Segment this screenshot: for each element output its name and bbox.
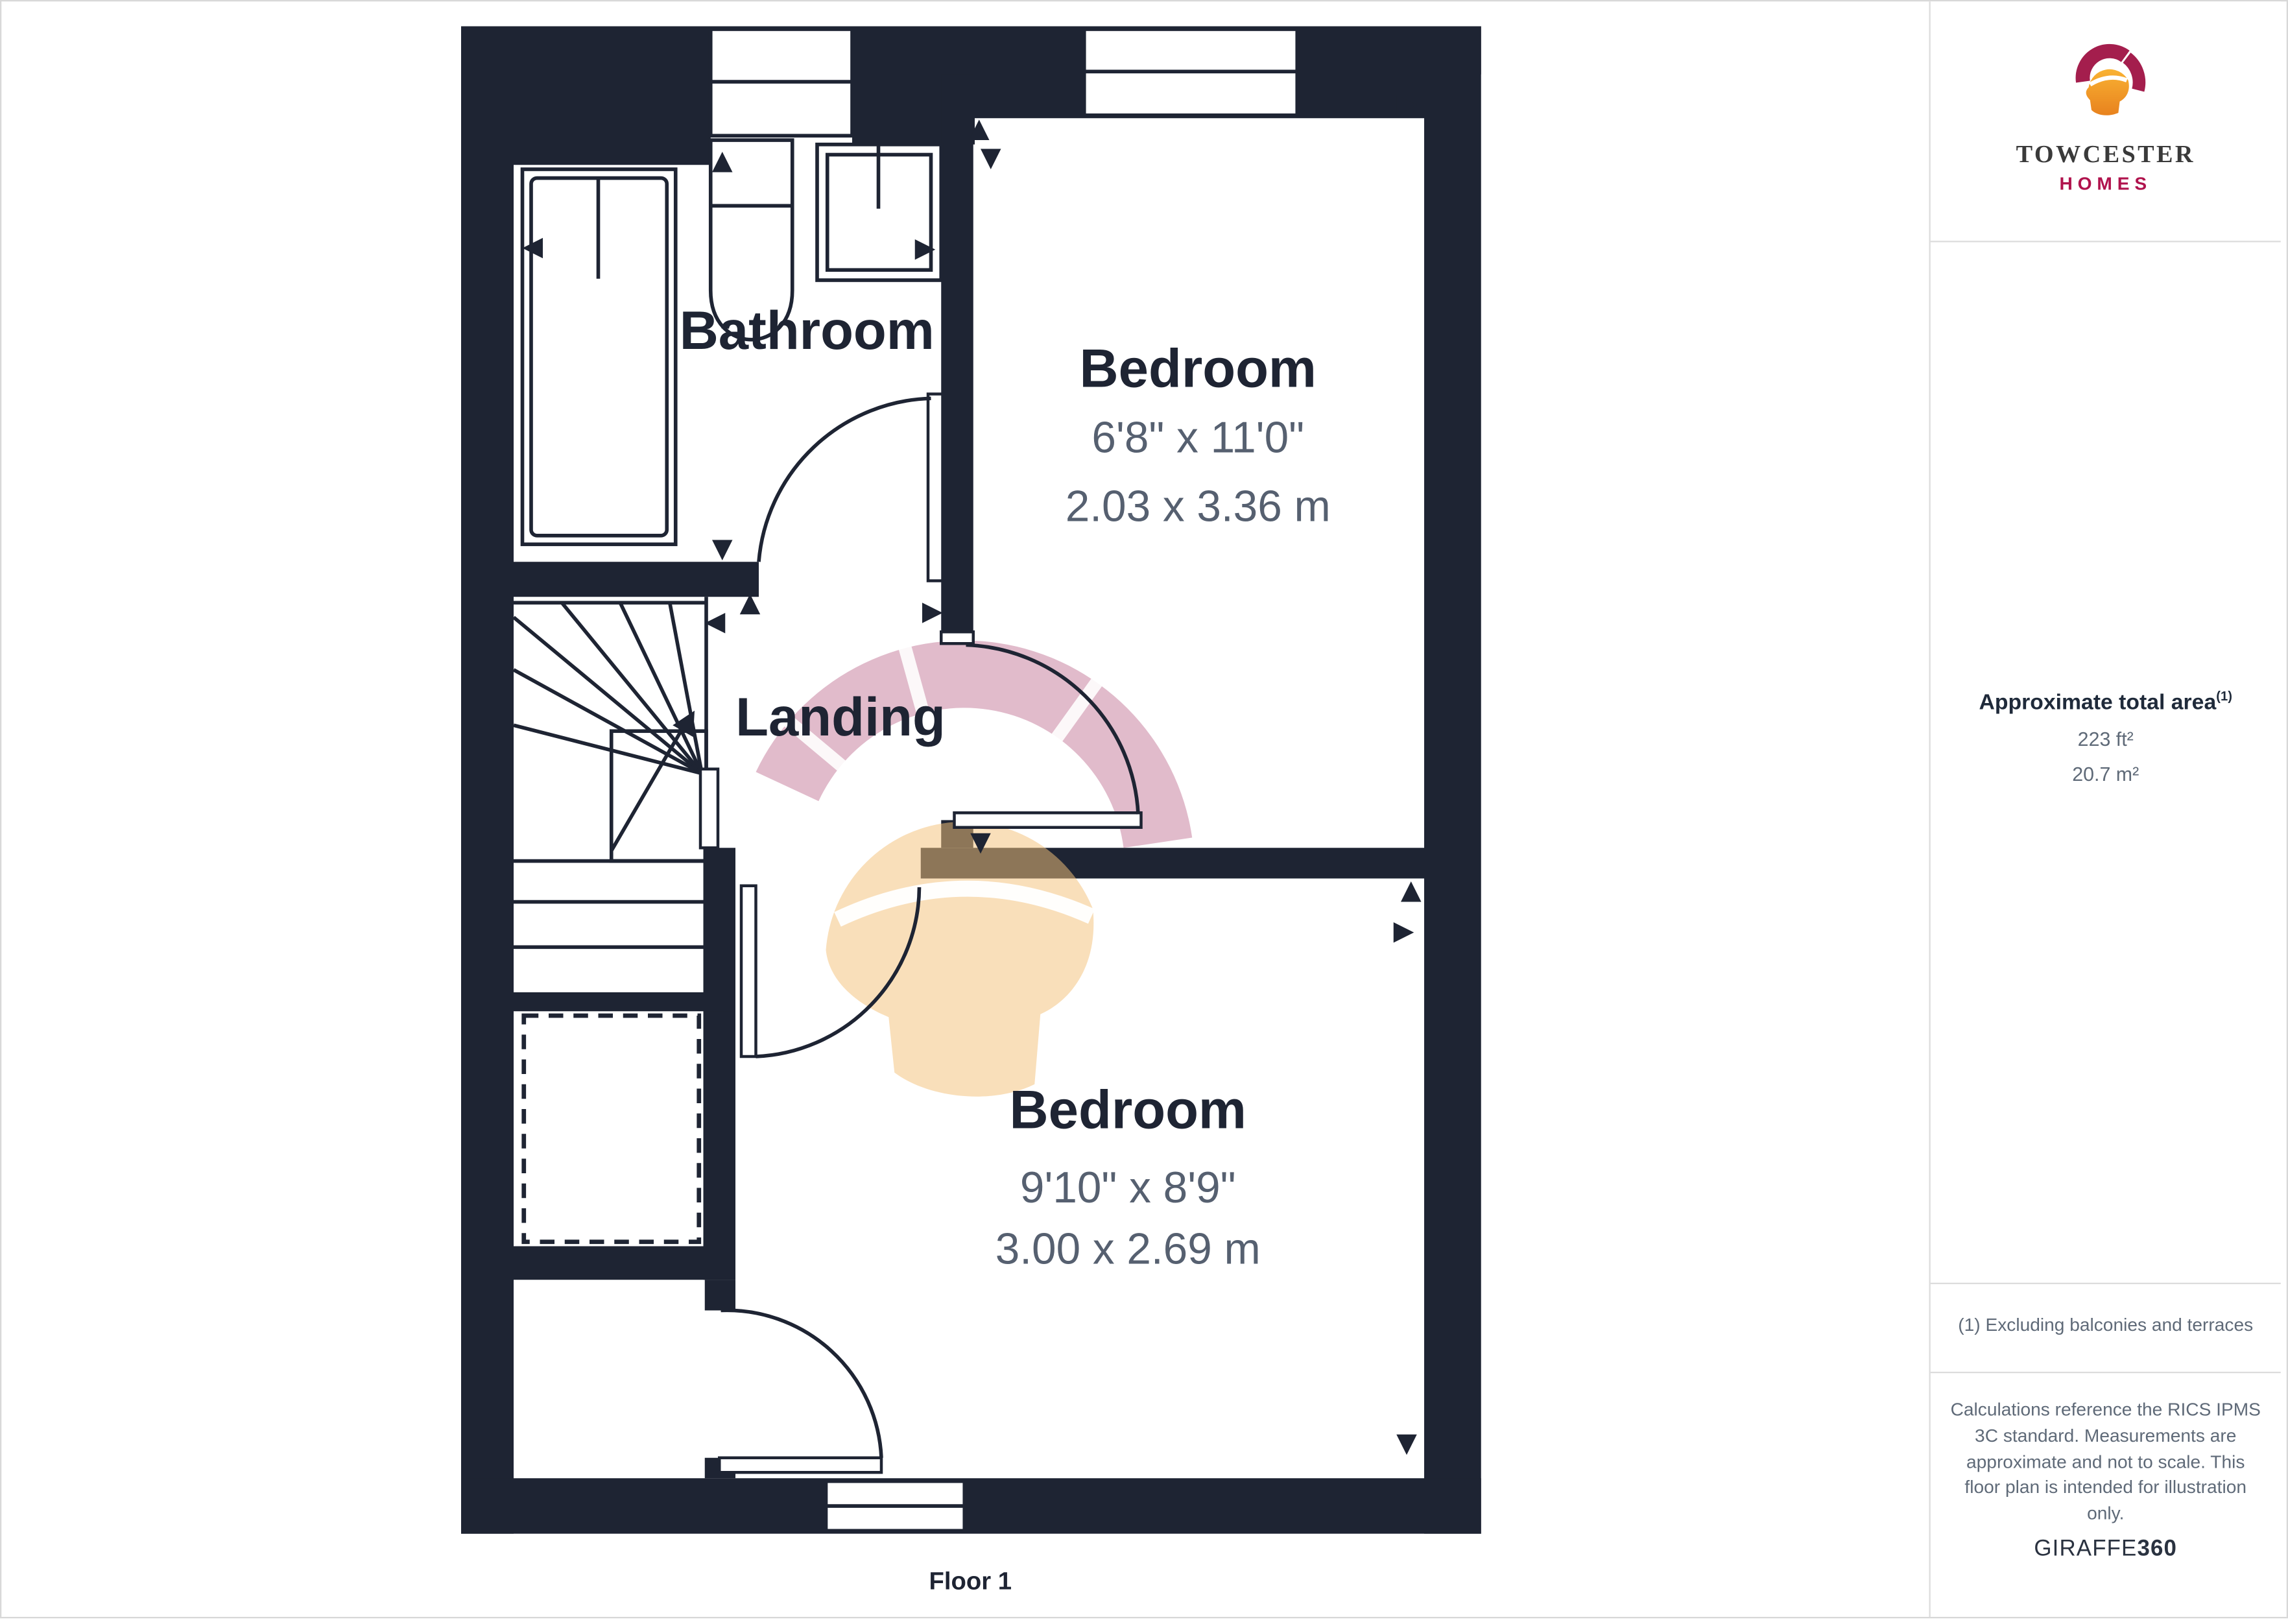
info-sidebar: TOWCESTER HOMES Approximate total area(1… (1929, 1, 2281, 1617)
brand-part2: 360 (2137, 1536, 2177, 1561)
bedroom-top-label: Bedroom (1080, 338, 1317, 398)
total-area-block: Approximate total area(1) 223 ft² 20.7 m… (1931, 689, 2281, 785)
stairs (514, 597, 706, 947)
towcester-homes-logo: TOWCESTER HOMES (1931, 36, 2281, 194)
floor-plan-drawing: Bathroom Bedroom 6'8" x 11'0" 2.03 x 3.3… (1, 1, 1929, 1617)
helmet-logo-icon (2060, 36, 2151, 127)
total-area-title: Approximate total area(1) (1931, 689, 2281, 715)
bathtub (523, 169, 676, 544)
sink (817, 145, 941, 280)
bedroom-bottom-metric: 3.00 x 2.69 m (995, 1225, 1261, 1274)
logo-subname-text: HOMES (1931, 174, 2281, 195)
bedroom-bottom-imperial: 9'10" x 8'9" (1020, 1164, 1236, 1212)
sidebar-divider-3 (1931, 1372, 2281, 1373)
brand-part1: GIRAFFE (2034, 1536, 2137, 1561)
window-bathroom (711, 29, 852, 136)
sidebar-divider-2 (1931, 1283, 2281, 1284)
window-bedroom-bottom (826, 1481, 965, 1531)
sidebar-divider-1 (1931, 241, 2281, 242)
landing-label: Landing (735, 687, 946, 747)
total-area-metric: 20.7 m² (1931, 763, 2281, 785)
bathroom-label: Bathroom (680, 300, 935, 361)
disclaimer-text: Calculations reference the RICS IPMS 3C … (1949, 1398, 2262, 1528)
floorplan-page: Bathroom Bedroom 6'8" x 11'0" 2.03 x 3.3… (0, 0, 2288, 1619)
door-store-room (719, 1310, 881, 1472)
footnote-text: (1) Excluding balconies and terraces (1931, 1315, 2281, 1335)
storage-dashed-box (524, 1016, 699, 1242)
bedroom-bottom-label: Bedroom (1010, 1079, 1246, 1140)
door-bathroom (759, 394, 943, 581)
floor-label: Floor 1 (929, 1567, 1012, 1595)
bedroom-top-imperial: 6'8" x 11'0" (1091, 414, 1304, 462)
giraffe360-brand: GIRAFFE360 (1931, 1536, 2281, 1563)
bedroom-top-metric: 2.03 x 3.36 m (1066, 482, 1331, 531)
window-bedroom-top (1084, 29, 1298, 115)
footnote-marker: (1) (2216, 689, 2232, 704)
logo-name-text: TOWCESTER (1931, 140, 2281, 169)
total-area-imperial: 223 ft² (1931, 728, 2281, 750)
floor-plan-area: Bathroom Bedroom 6'8" x 11'0" 2.03 x 3.3… (1, 1, 1929, 1617)
